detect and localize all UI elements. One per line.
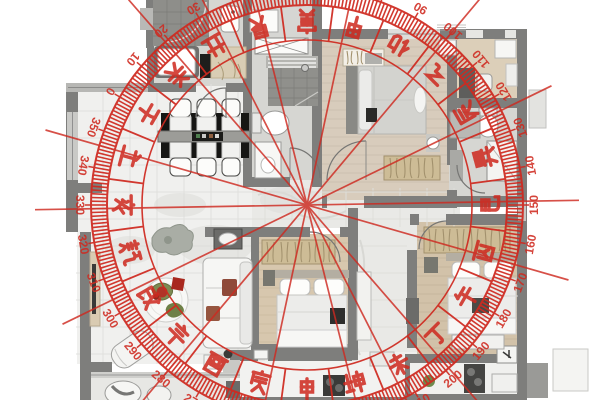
svg-text:150: 150: [527, 195, 541, 215]
svg-text:330: 330: [73, 195, 87, 215]
